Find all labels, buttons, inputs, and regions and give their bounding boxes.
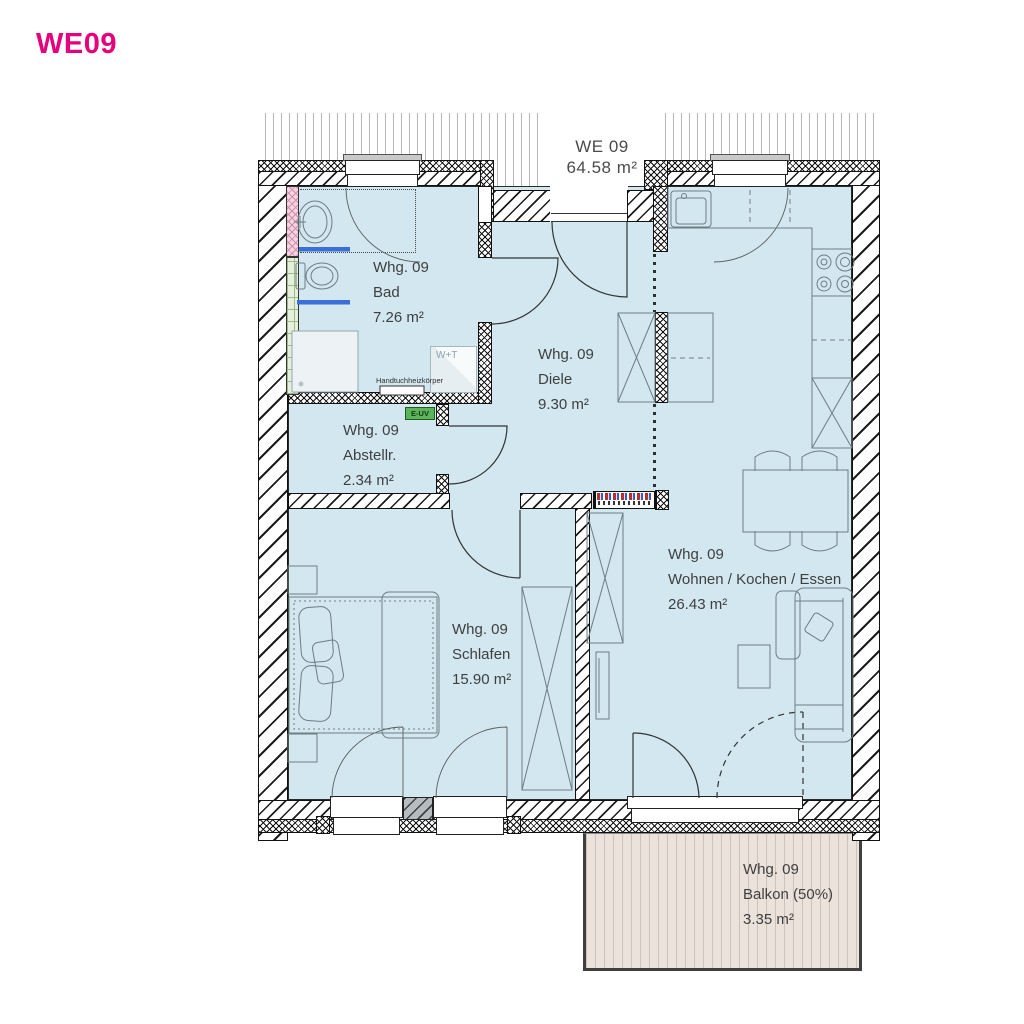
room-name: Diele (538, 367, 594, 392)
kitchen-sink-bowl (676, 198, 706, 224)
room-area: 3.35 m² (743, 907, 833, 932)
room-label-balkon: Whg. 09 Balkon (50%) 3.35 m² (743, 857, 833, 932)
pillow (298, 606, 334, 663)
living-cabinet-x (587, 513, 623, 643)
room-unit: Whg. 09 (373, 255, 429, 280)
room-name: Abstellr. (343, 443, 399, 468)
dining-set (743, 451, 848, 551)
floorplan-drawing (0, 0, 1024, 1024)
door-swings (449, 222, 803, 798)
room-unit: Whg. 09 (743, 857, 833, 882)
room-area: 7.26 m² (373, 305, 429, 330)
room-label-wohnen: Whg. 09 Wohnen / Kochen / Essen 26.43 m² (668, 542, 841, 617)
pillow (298, 665, 334, 722)
floorplan-page: WE09 WE 09 64.58 m² (0, 0, 1024, 1024)
nightstand-bottom (288, 734, 317, 762)
balcony-door-swing-dashed (717, 712, 803, 798)
schlafen-wardrobe-x (522, 587, 572, 790)
abstell-door-swing (449, 426, 507, 484)
dining-table (743, 470, 848, 532)
room-name: Schlafen (452, 642, 511, 667)
room-unit: Whg. 09 (538, 342, 594, 367)
washbasin-tap-icon (294, 216, 306, 228)
diele-wardrobe-x (618, 313, 655, 402)
room-unit: Whg. 09 (668, 542, 841, 567)
entry-door-swing (552, 222, 627, 297)
room-label-schlafen: Whg. 09 Schlafen 15.90 m² (452, 617, 511, 692)
balcony-door-swing (633, 733, 699, 798)
bed-frame (289, 597, 437, 733)
coffee-table (738, 645, 770, 688)
kitchen-counter-edge (668, 187, 812, 448)
room-unit: Whg. 09 (343, 418, 399, 443)
toilet-bowl (311, 267, 333, 285)
radiator-blue-2 (297, 300, 350, 305)
cooktop (817, 253, 854, 292)
bed-blanket (382, 592, 439, 738)
room-name: Bad (373, 280, 429, 305)
toilet-tank (296, 263, 305, 289)
bad-window-swing (346, 188, 420, 262)
room-label-diele: Whg. 09 Diele 9.30 m² (538, 342, 594, 417)
chair (802, 451, 837, 471)
room-area: 2.34 m² (343, 468, 399, 493)
schlafen-window2-swing (436, 727, 507, 798)
kitchen-fixtures (668, 187, 854, 448)
room-name: Wohnen / Kochen / Essen (668, 567, 841, 592)
fridge-cabinet (812, 378, 852, 448)
bad-door-swing (492, 258, 558, 324)
kitchen-sink (671, 191, 711, 227)
shower-drain (299, 382, 304, 387)
kitchen-right-counter-lines (812, 249, 852, 378)
radiator-blue-1 (299, 247, 350, 252)
kitchen-counter-dividers (750, 190, 790, 226)
room-label-bad: Whg. 09 Bad 7.26 m² (373, 255, 429, 330)
cabinets (587, 313, 713, 719)
bedroom-furniture (288, 566, 572, 790)
schlafen-door-swing (452, 510, 520, 578)
nightstand-top (288, 566, 317, 594)
towel-radiator (380, 386, 424, 395)
room-area: 26.43 m² (668, 592, 841, 617)
tv-sideboard (596, 652, 609, 719)
kitchen-window-swing (714, 188, 788, 262)
room-label-abstellraum: Whg. 09 Abstellr. 2.34 m² (343, 418, 399, 493)
room-area: 9.30 m² (538, 392, 594, 417)
room-unit: Whg. 09 (452, 617, 511, 642)
chair (755, 451, 790, 471)
room-name: Balkon (50%) (743, 882, 833, 907)
washbasin-bowl (303, 206, 327, 238)
room-area: 15.90 m² (452, 667, 511, 692)
